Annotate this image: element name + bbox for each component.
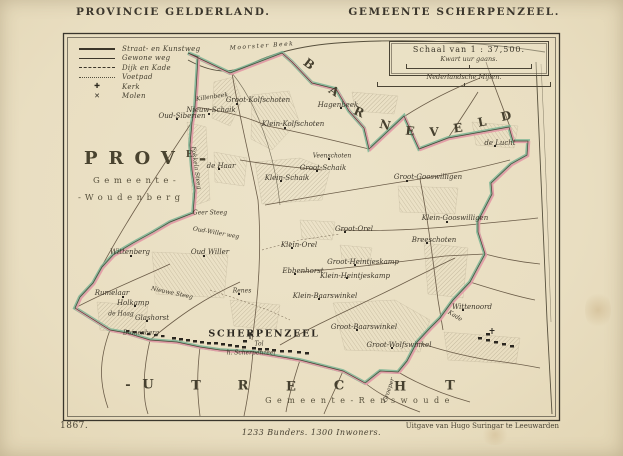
map-label-fokkela-steeg: Fokkela Steeg bbox=[190, 146, 203, 190]
map-label-klein-heintjeskamp: Klein-Heintjeskamp bbox=[320, 272, 390, 280]
region-letter: T bbox=[445, 379, 455, 394]
map-label-breeschoten: Breeschoten bbox=[412, 236, 456, 244]
map-label-glashorst: Glashorst bbox=[135, 314, 169, 322]
map-label-klein-orel: Klein-Orel bbox=[281, 241, 317, 249]
map-label-klein-gooswilligen: Klein-Gooswilligen bbox=[422, 214, 488, 222]
region-letter: E bbox=[452, 120, 463, 135]
map-label-h-scherpenzeel: h. Scherpenzeel bbox=[227, 350, 276, 357]
map-label-tol: Tol bbox=[254, 341, 263, 348]
map-label-klein-baarswinkel: Klein-Baarswinkel bbox=[293, 292, 358, 300]
map-label-oud-willer: Oud Willer bbox=[191, 248, 229, 256]
region-letter: R bbox=[238, 379, 249, 394]
region-letter: C bbox=[334, 379, 344, 394]
region-letter: - bbox=[125, 378, 130, 393]
region-letter: U bbox=[142, 378, 153, 393]
map-label-wittenberg: Wittenberg bbox=[110, 248, 150, 256]
map-label-kade: Kade bbox=[447, 309, 464, 323]
map-label-groot-kolfschoten: Groot-Kolfschoten bbox=[226, 96, 290, 104]
map-label-rumelaar: Rumelaar bbox=[95, 289, 130, 297]
map-label-klein-kolfschoten: Klein-Kolfschoten bbox=[262, 120, 325, 128]
map-label-holkamp: Holkamp bbox=[117, 299, 149, 307]
map-label-scherpenzeel: SCHERPENZEEL bbox=[208, 329, 319, 340]
region-letter: B bbox=[301, 55, 318, 72]
region-letter: L bbox=[477, 114, 488, 129]
map-label-de-haar: de Haar bbox=[207, 162, 236, 170]
map-label-veenschoten: Veenschoten bbox=[313, 153, 352, 160]
map-label-groot-gooswilligen: Groot-Gooswilligen bbox=[394, 173, 462, 181]
map-label-nieuwe-steeg: Nieuwe Steeg bbox=[150, 285, 193, 301]
region-letter: H bbox=[394, 380, 406, 395]
region-letter: A bbox=[326, 83, 341, 100]
map-label-killenbeek: Killenbeek bbox=[196, 91, 229, 102]
map-label-wittenoord: Wittenoord bbox=[452, 303, 492, 311]
region-letter: E bbox=[286, 380, 296, 395]
map-label-hagenbeek: Hagenbeek bbox=[318, 101, 358, 109]
map-label-groot-baarswinkel: Groot-Baarswinkel bbox=[331, 323, 397, 331]
map-label-geer-steeg: Geer Steeg bbox=[193, 210, 227, 217]
map-label-groot-orel: Groot-Orel bbox=[335, 225, 373, 233]
map-label-renes: Renes bbox=[233, 288, 252, 295]
region-letter: T bbox=[191, 379, 201, 394]
map-label-de-lucht: de Lucht bbox=[484, 139, 515, 147]
map-label-oud-siberien: Oud-Siberien bbox=[159, 112, 206, 120]
region-letter: N bbox=[378, 117, 392, 133]
map-sheet: PROVINCIE GELDERLAND. GEMEENTE SCHERPENZ… bbox=[0, 0, 623, 456]
region-letter: V bbox=[429, 125, 439, 139]
map-label-oud-willer-weg: Oud-Willer weg bbox=[192, 225, 240, 240]
map-label-groot-wolfswinkel: Groot-Wolfswinkel bbox=[367, 341, 432, 349]
publisher-label: Uitgave van Hugo Suringar te Leeuwarden bbox=[359, 422, 559, 430]
map-labels-layer: BARNEVELD-UTRECHTMoorster BeekKillenbeek… bbox=[0, 0, 623, 456]
map-label-groot-heintjeskamp: Groot-Heintjeskamp bbox=[327, 258, 399, 266]
map-label-groot-schaik: Groot-Schaik bbox=[300, 164, 346, 172]
region-letter: D bbox=[499, 108, 512, 124]
region-letter: E bbox=[405, 124, 416, 139]
map-label-klein-schaik: Klein-Schaik bbox=[265, 174, 310, 182]
map-label-de-haag: de Haag bbox=[108, 311, 134, 318]
map-label-moorster-beek: Moorster Beek bbox=[229, 40, 294, 51]
map-label-ebbenhorst: Ebbenhorst bbox=[282, 267, 323, 275]
map-label-duinenberg: Duinenberg bbox=[123, 330, 159, 337]
